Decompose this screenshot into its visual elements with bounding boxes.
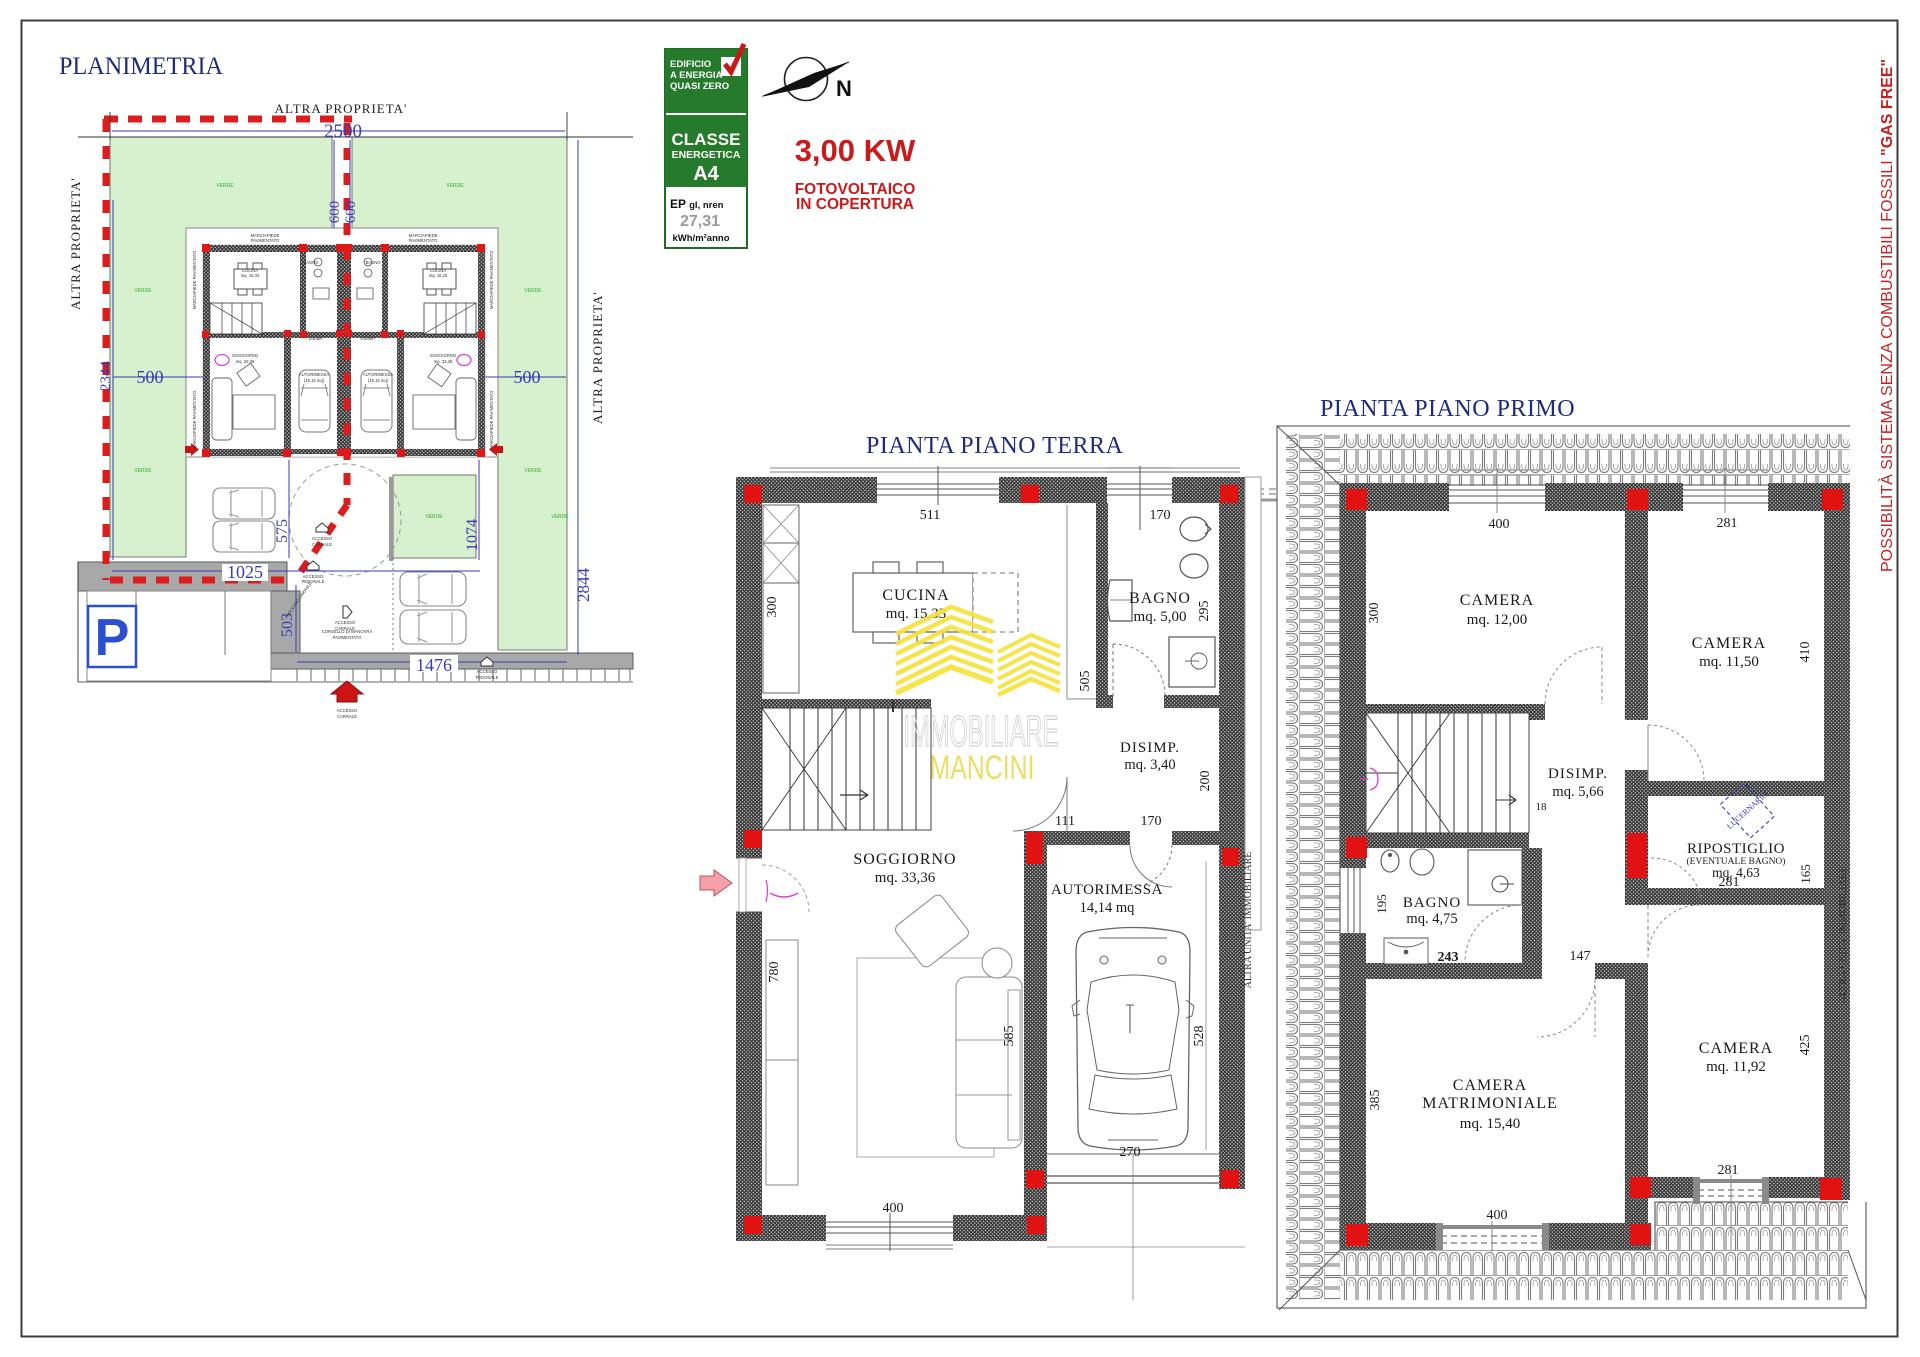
svg-text:2344: 2344 — [98, 361, 114, 392]
svg-text:575: 575 — [274, 519, 291, 543]
svg-text:SOGGIORNO: SOGGIORNO — [232, 353, 259, 358]
svg-text:DISIMP.: DISIMP. — [360, 336, 375, 341]
svg-text:N: N — [836, 76, 852, 101]
svg-text:CAMERA: CAMERA — [1692, 635, 1766, 652]
svg-text:VERDE: VERDE — [216, 183, 234, 189]
svg-text:400: 400 — [1487, 1208, 1508, 1223]
svg-text:1476: 1476 — [416, 655, 452, 675]
svg-text:300: 300 — [765, 597, 780, 618]
svg-text:ACCESSO: ACCESSO — [335, 620, 356, 625]
svg-text:385: 385 — [1368, 1090, 1383, 1111]
svg-text:(15,15 mq): (15,15 mq) — [304, 378, 325, 383]
svg-text:270: 270 — [1120, 1145, 1141, 1160]
svg-text:1074: 1074 — [464, 519, 481, 551]
svg-text:CAMERA: CAMERA — [1453, 1077, 1527, 1094]
svg-text:mq. 15,40: mq. 15,40 — [1460, 1116, 1520, 1132]
svg-text:ACCESSO: ACCESSO — [312, 536, 333, 541]
svg-text:3,00 KW: 3,00 KW — [795, 133, 916, 168]
svg-text:MARCIAPIEDE PAVIMENTATO: MARCIAPIEDE PAVIMENTATO — [489, 250, 494, 309]
svg-text:mq. 4,75: mq. 4,75 — [1406, 911, 1457, 927]
svg-text:ALTRA UNITA' IMMOBILIARE: ALTRA UNITA' IMMOBILIARE — [1243, 852, 1254, 989]
svg-text:200: 200 — [1198, 771, 1213, 792]
svg-text:MARCIAPIEDE PAVIMENTATO: MARCIAPIEDE PAVIMENTATO — [192, 390, 197, 449]
svg-text:CUCINA: CUCINA — [882, 587, 949, 604]
svg-text:kWh/m²anno: kWh/m²anno — [673, 233, 730, 244]
svg-text:mq. 3,40: mq. 3,40 — [1124, 757, 1175, 773]
svg-text:410: 410 — [1798, 642, 1813, 663]
svg-text:295: 295 — [1197, 601, 1212, 622]
svg-text:ALTRA PROPRIETA': ALTRA PROPRIETA' — [275, 101, 408, 116]
svg-text:PLANIMETRIA: PLANIMETRIA — [59, 53, 223, 80]
svg-text:CLASSE: CLASSE — [672, 130, 741, 149]
svg-text:VERDE: VERDE — [551, 514, 569, 520]
svg-text:CARRALE: CARRALE — [312, 542, 332, 547]
svg-text:ALTRA UNITA' IMMOBILIARE: ALTRA UNITA' IMMOBILIARE — [1838, 867, 1849, 1004]
svg-text:SOGGIORNO: SOGGIORNO — [430, 353, 457, 358]
svg-text:ACCESSO: ACCESSO — [337, 708, 358, 713]
svg-text:IN COPERTURA: IN COPERTURA — [796, 196, 914, 213]
svg-text:(15,15 mq): (15,15 mq) — [368, 378, 389, 383]
svg-text:mq. 11,92: mq. 11,92 — [1706, 1059, 1766, 1075]
svg-text:PAVIMENTATO: PAVIMENTATO — [409, 238, 438, 243]
svg-text:mq. 15,33: mq. 15,33 — [241, 273, 260, 278]
svg-text:MARCIAPIEDE PAVIMENTATO: MARCIAPIEDE PAVIMENTATO — [489, 390, 494, 449]
svg-text:281: 281 — [1718, 1163, 1739, 1178]
svg-text:500: 500 — [514, 367, 541, 387]
svg-text:ALTRA PROPRIETA': ALTRA PROPRIETA' — [590, 291, 605, 424]
svg-text:DISIMP.: DISIMP. — [308, 336, 323, 341]
svg-text:BAGNO: BAGNO — [365, 260, 381, 265]
svg-text:CARRALE: CARRALE — [337, 714, 357, 719]
svg-text:300: 300 — [1367, 603, 1382, 624]
svg-text:BAGNO: BAGNO — [303, 260, 319, 265]
svg-text:PIANTA PIANO TERRA: PIANTA PIANO TERRA — [866, 433, 1123, 459]
svg-text:VERDE: VERDE — [425, 514, 443, 520]
svg-text:281: 281 — [1717, 516, 1738, 531]
svg-text:PEDONALE: PEDONALE — [476, 675, 499, 680]
svg-text:147: 147 — [1570, 949, 1591, 964]
svg-text:RIPOSTIGLIO: RIPOSTIGLIO — [1687, 841, 1785, 857]
svg-text:A4: A4 — [693, 163, 719, 185]
svg-text:mq. 33,36: mq. 33,36 — [434, 359, 453, 364]
svg-text:PIANTA PIANO PRIMO: PIANTA PIANO PRIMO — [1320, 396, 1575, 422]
svg-text:AUTORIMESSA: AUTORIMESSA — [299, 372, 330, 377]
svg-text:600: 600 — [327, 201, 343, 224]
svg-text:EP gl, nren: EP gl, nren — [670, 197, 724, 211]
svg-text:mq. 33,36: mq. 33,36 — [236, 359, 255, 364]
svg-text:AUTORIMESSA: AUTORIMESSA — [363, 372, 394, 377]
svg-text:170: 170 — [1141, 814, 1162, 829]
svg-text:425: 425 — [1798, 1035, 1813, 1056]
svg-text:DISIMP.: DISIMP. — [1120, 740, 1180, 756]
svg-text:VERDE: VERDE — [134, 468, 152, 474]
svg-text:ALTRA PROPRIETA': ALTRA PROPRIETA' — [68, 177, 83, 310]
svg-text:mq. 5,66: mq. 5,66 — [1552, 784, 1603, 800]
svg-text:VERDE: VERDE — [134, 288, 152, 294]
svg-text:ENERGETICA: ENERGETICA — [672, 149, 741, 161]
svg-text:170: 170 — [1150, 508, 1171, 523]
svg-text:111: 111 — [1055, 814, 1075, 829]
svg-text:165: 165 — [1798, 864, 1813, 884]
svg-text:27,31: 27,31 — [680, 213, 720, 230]
svg-text:500: 500 — [137, 367, 164, 387]
svg-text:EDIFICIO: EDIFICIO — [670, 59, 711, 70]
svg-text:mq. 15,33: mq. 15,33 — [429, 273, 448, 278]
svg-text:CAMERA: CAMERA — [1699, 1040, 1773, 1057]
svg-text:mq. 12,00: mq. 12,00 — [1467, 612, 1527, 628]
svg-text:PAVIMENTATO: PAVIMENTATO — [333, 635, 362, 640]
svg-text:528: 528 — [1192, 1026, 1207, 1047]
svg-text:2844: 2844 — [574, 568, 593, 603]
svg-text:SOGGIORNO: SOGGIORNO — [853, 851, 956, 868]
svg-text:2500: 2500 — [324, 121, 362, 142]
svg-text:POSSIBILITÀ SISTEMA SENZA COMB: POSSIBILITÀ SISTEMA SENZA COMBUSTIBILI F… — [1877, 59, 1896, 572]
svg-text:PAVIMENTATO: PAVIMENTATO — [251, 238, 280, 243]
svg-text:MANCINI: MANCINI — [930, 749, 1035, 787]
svg-text:A ENERGIA: A ENERGIA — [670, 70, 723, 81]
svg-text:mq. 5,00: mq. 5,00 — [1134, 609, 1187, 625]
svg-text:CORSELLO DI MANOVRA: CORSELLO DI MANOVRA — [322, 629, 373, 634]
svg-text:BAGNO: BAGNO — [1129, 590, 1191, 607]
svg-text:400: 400 — [883, 1201, 904, 1216]
svg-text:ACCESSO: ACCESSO — [477, 669, 498, 674]
svg-text:MATRIMONIALE: MATRIMONIALE — [1422, 1095, 1558, 1112]
svg-text:18: 18 — [1536, 801, 1548, 813]
svg-text:243: 243 — [1438, 950, 1459, 965]
svg-text:BAGNO: BAGNO — [1403, 895, 1461, 911]
svg-text:600: 600 — [343, 201, 359, 224]
svg-text:CAMERA: CAMERA — [1460, 592, 1534, 609]
svg-text:1025: 1025 — [227, 562, 263, 582]
svg-text:400: 400 — [1489, 517, 1510, 532]
svg-text:511: 511 — [920, 508, 940, 523]
svg-text:505: 505 — [1078, 671, 1093, 692]
svg-text:PEDONALE: PEDONALE — [302, 579, 325, 584]
svg-text:281: 281 — [1719, 875, 1740, 890]
svg-text:780: 780 — [767, 962, 782, 983]
svg-text:14,14 mq: 14,14 mq — [1080, 900, 1135, 916]
svg-text:MARCIAPIEDE PAVIMENTATO: MARCIAPIEDE PAVIMENTATO — [192, 250, 197, 309]
svg-text:mq. 11,50: mq. 11,50 — [1699, 654, 1759, 670]
svg-text:VERDE: VERDE — [446, 183, 464, 189]
svg-text:QUASI ZERO: QUASI ZERO — [670, 81, 729, 92]
svg-text:P: P — [95, 609, 130, 667]
svg-text:DISIMP.: DISIMP. — [1548, 766, 1608, 782]
svg-text:VERDE: VERDE — [524, 288, 542, 294]
svg-text:mq. 33,36: mq. 33,36 — [875, 870, 936, 886]
svg-text:585: 585 — [1002, 1026, 1017, 1047]
svg-text:AUTORIMESSA: AUTORIMESSA — [1051, 882, 1163, 898]
svg-text:VERDE: VERDE — [524, 468, 542, 474]
svg-text:195: 195 — [1374, 894, 1389, 914]
